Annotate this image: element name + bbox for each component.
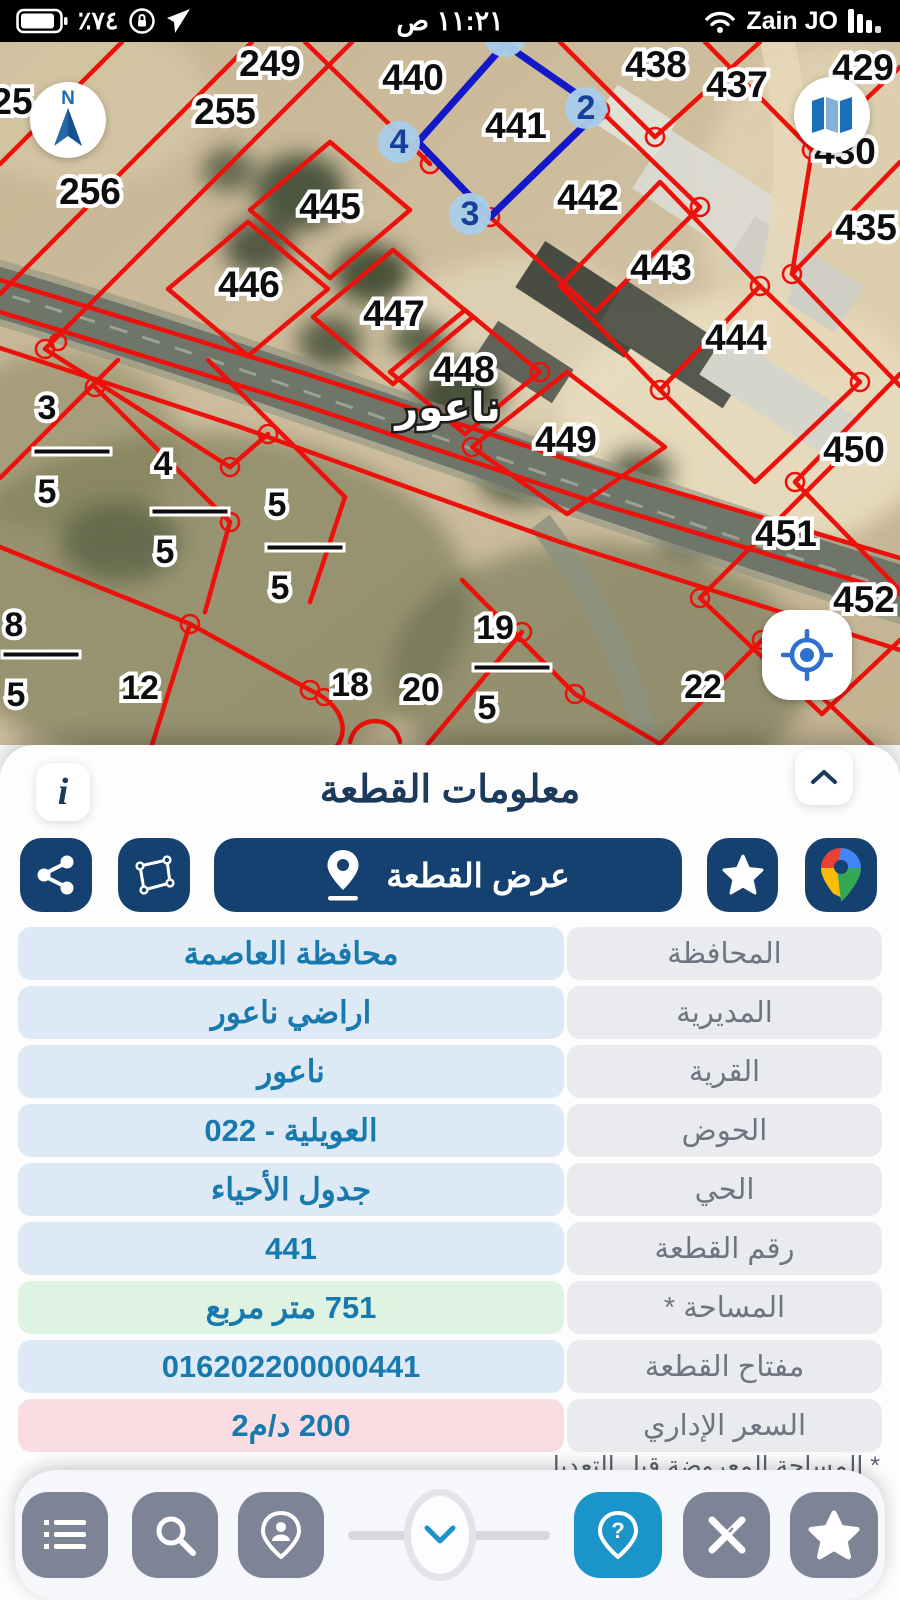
parcel-label: 22 (684, 668, 722, 706)
parcel-corner-number: 3 (461, 195, 480, 233)
parcel-label: 12 (121, 669, 159, 707)
chevron-up-icon (809, 767, 839, 787)
table-row: 016202200000441 مفتاح القطعة (18, 1340, 882, 1393)
row-value: ناعور (18, 1045, 564, 1098)
share-icon (35, 853, 77, 897)
parcel-label: 442 (557, 177, 619, 218)
parcel-label: 5 (268, 486, 287, 524)
parcel-label: 19 (476, 609, 514, 647)
row-value: 751 متر مربع (18, 1281, 564, 1334)
row-label: السعر الإداري (567, 1399, 882, 1452)
search-icon (153, 1513, 197, 1557)
parcel-label: 444 (705, 317, 767, 358)
measure-tools-button[interactable] (683, 1492, 770, 1578)
status-time: ١١:٢١ ص (0, 6, 900, 37)
parcel-label: 447 (363, 293, 425, 334)
row-value: 200 د/م2 (18, 1399, 564, 1452)
row-label: القرية (567, 1045, 882, 1098)
parcel-label: 445 (299, 186, 361, 227)
parcel-label: 435 (835, 207, 897, 248)
google-maps-button[interactable] (805, 838, 877, 912)
svg-text:N: N (61, 88, 75, 109)
locate-icon (781, 629, 833, 681)
row-label: الحي (567, 1163, 882, 1216)
table-row: 200 د/م2 السعر الإداري (18, 1399, 882, 1452)
ruler-pencil-icon (704, 1512, 750, 1558)
row-label: مفتاح القطعة (567, 1340, 882, 1393)
parcel-label: 449 (535, 419, 597, 460)
sheet-title: معلومات القطعة (0, 767, 900, 812)
favorite-button[interactable] (707, 838, 778, 912)
road-label-bar (473, 664, 551, 671)
info-button[interactable]: i (36, 763, 90, 821)
parcel-label: 8 (5, 606, 24, 644)
parcel-label: 448 (433, 349, 495, 390)
row-label: المديرية (567, 986, 882, 1039)
table-row: 751 متر مربع المساحة * (18, 1281, 882, 1334)
parcel-label: 25 (0, 81, 33, 122)
row-value: 441 (18, 1222, 564, 1275)
parcel-label: 452 (833, 579, 895, 620)
parcel-corner-number: 4 (390, 123, 409, 161)
parcel-label: 440 (382, 57, 444, 98)
table-row: العويلية - 022 الحوض (18, 1104, 882, 1157)
row-label: المساحة * (567, 1281, 882, 1334)
road-label-bar (2, 651, 80, 658)
row-value: اراضي ناعور (18, 986, 564, 1039)
row-value: العويلية - 022 (18, 1104, 564, 1157)
parcel-label: 450 (823, 429, 885, 470)
row-label: رقم القطعة (567, 1222, 882, 1275)
zoom-slider-knob[interactable] (404, 1489, 476, 1581)
parcel-label: 438 (625, 44, 687, 85)
parcel-label: 443 (630, 247, 692, 288)
layers-list-button[interactable] (22, 1492, 108, 1578)
bottom-toolbar: ? (15, 1470, 885, 1600)
compass-button[interactable]: N (30, 82, 106, 158)
collapse-sheet-button[interactable] (795, 749, 853, 805)
parcel-info-table: محافظة العاصمة المحافظة اراضي ناعور المد… (18, 927, 882, 1452)
chevron-down-icon (423, 1524, 457, 1546)
road-label-bar (33, 448, 111, 455)
table-row: جدول الأحياء الحي (18, 1163, 882, 1216)
star-icon (721, 854, 765, 896)
locality-label: ناعور (393, 385, 500, 431)
app-screen: ٧٤٪ ١١:٢١ ص Zain JO (0, 0, 900, 1600)
parcel-label: 446 (218, 264, 280, 305)
search-button[interactable] (132, 1492, 218, 1578)
parcel-label: 18 (331, 666, 369, 704)
table-row: محافظة العاصمة المحافظة (18, 927, 882, 980)
parcel-label: 255 (194, 91, 256, 132)
row-value: محافظة العاصمة (18, 927, 564, 980)
star-icon (808, 1510, 860, 1560)
table-row: اراضي ناعور المديرية (18, 986, 882, 1039)
polygon-icon (132, 853, 176, 897)
parcel-label: 441 (485, 105, 547, 146)
locate-me-button[interactable] (762, 610, 852, 700)
row-label: الحوض (567, 1104, 882, 1157)
parcel-label: 4 (154, 445, 173, 483)
table-row: ناعور القرية (18, 1045, 882, 1098)
parcel-label: 256 (59, 171, 121, 212)
road-label-bar (151, 508, 229, 515)
map-icon (810, 95, 854, 135)
compass-icon: N (30, 82, 106, 158)
help-pin-icon: ? (597, 1511, 639, 1559)
polygon-tool-button[interactable] (118, 838, 190, 912)
parcel-label: 451 (755, 513, 817, 554)
parcel-label: 249 (239, 43, 301, 84)
row-value: جدول الأحياء (18, 1163, 564, 1216)
view-parcel-label: عرض القطعة (386, 856, 570, 895)
share-button[interactable] (20, 838, 92, 912)
list-icon (42, 1515, 88, 1555)
parcel-pin-icon (326, 849, 360, 901)
favorites-button[interactable] (790, 1492, 878, 1578)
table-row: 441 رقم القطعة (18, 1222, 882, 1275)
parcel-label: 437 (706, 64, 768, 105)
road-label: 5 (271, 569, 290, 607)
road-label: 5 (38, 473, 57, 511)
help-button[interactable]: ? (574, 1492, 662, 1578)
my-location-pin-button[interactable] (238, 1492, 324, 1578)
road-label-bar (266, 544, 344, 551)
road-label: 5 (7, 676, 26, 714)
row-value: 016202200000441 (18, 1340, 564, 1393)
person-pin-icon (260, 1511, 302, 1559)
status-bar: ٧٤٪ ١١:٢١ ص Zain JO (0, 0, 900, 42)
parcel-label: 20 (402, 671, 440, 709)
google-maps-pin-icon (821, 848, 861, 902)
row-label: المحافظة (567, 927, 882, 980)
svg-text:?: ? (611, 1518, 624, 1543)
map-style-button[interactable] (794, 77, 870, 153)
parcel-corner-number: 2 (577, 89, 596, 127)
road-label: 5 (478, 689, 497, 727)
road-label: 5 (156, 533, 175, 571)
parcel-label: 3 (38, 389, 57, 427)
view-parcel-button[interactable]: عرض القطعة (214, 838, 682, 912)
